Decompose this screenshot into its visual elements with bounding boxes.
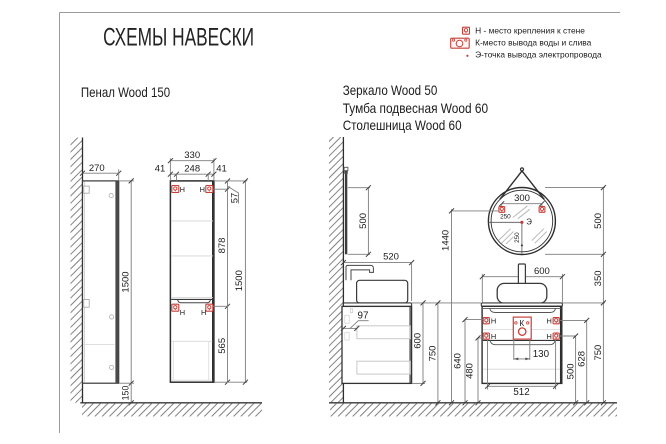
svg-text:57: 57 (229, 193, 240, 204)
svg-text:Э-точка вывода электропровода: Э-точка вывода электропровода (475, 50, 602, 60)
svg-text:520: 520 (383, 252, 399, 263)
svg-text:628: 628 (576, 351, 587, 367)
svg-text:Зеркало Wood 50: Зеркало Wood 50 (343, 83, 438, 98)
svg-text:Э: Э (526, 217, 532, 226)
svg-text:К-место вывода воды и слива: К-место вывода воды и слива (475, 37, 592, 47)
svg-text:500: 500 (566, 363, 577, 379)
svg-text:500: 500 (593, 213, 604, 229)
svg-text:250: 250 (514, 232, 521, 243)
svg-text:H: H (200, 185, 205, 194)
svg-text:Н - место крепления к стене: Н - место крепления к стене (475, 25, 585, 35)
svg-text:250: 250 (500, 214, 511, 221)
svg-text:270: 270 (89, 163, 105, 174)
svg-text:H: H (201, 308, 206, 317)
svg-text:1500: 1500 (121, 271, 132, 292)
svg-text:878: 878 (217, 238, 228, 254)
svg-text:1500: 1500 (234, 270, 245, 291)
svg-text:97: 97 (358, 311, 369, 322)
svg-text:350: 350 (593, 270, 604, 286)
svg-text:Тумба подвесная Wood 60: Тумба подвесная Wood 60 (343, 101, 489, 116)
svg-text:Столешница Wood 60: Столешница Wood 60 (343, 118, 462, 133)
svg-text:150: 150 (121, 386, 131, 401)
svg-text:500: 500 (358, 213, 369, 229)
svg-text:1440: 1440 (441, 230, 452, 251)
svg-text:H: H (546, 316, 551, 325)
svg-text:H: H (491, 316, 496, 325)
svg-text:41: 41 (155, 164, 166, 175)
svg-text:H: H (546, 332, 551, 341)
svg-text:512: 512 (513, 387, 529, 398)
svg-text:480: 480 (465, 363, 476, 379)
svg-text:565: 565 (217, 338, 228, 354)
svg-text:330: 330 (184, 150, 200, 161)
svg-text:41: 41 (216, 164, 227, 175)
svg-text:130: 130 (533, 349, 550, 360)
svg-text:600: 600 (534, 266, 550, 277)
svg-text:750: 750 (427, 346, 438, 362)
svg-text:H: H (180, 185, 185, 194)
svg-text:К: К (519, 319, 524, 328)
svg-text:H: H (180, 308, 185, 317)
svg-text:750: 750 (593, 345, 604, 361)
svg-text:300: 300 (514, 193, 530, 204)
svg-text:H: H (491, 332, 496, 341)
svg-text:248: 248 (184, 164, 200, 175)
svg-text:СХЕМЫ НАВЕСКИ: СХЕМЫ НАВЕСКИ (103, 23, 254, 51)
svg-text:Пенал Wood 150: Пенал Wood 150 (81, 85, 170, 100)
svg-text:640: 640 (453, 353, 464, 369)
svg-text:600: 600 (413, 333, 424, 349)
